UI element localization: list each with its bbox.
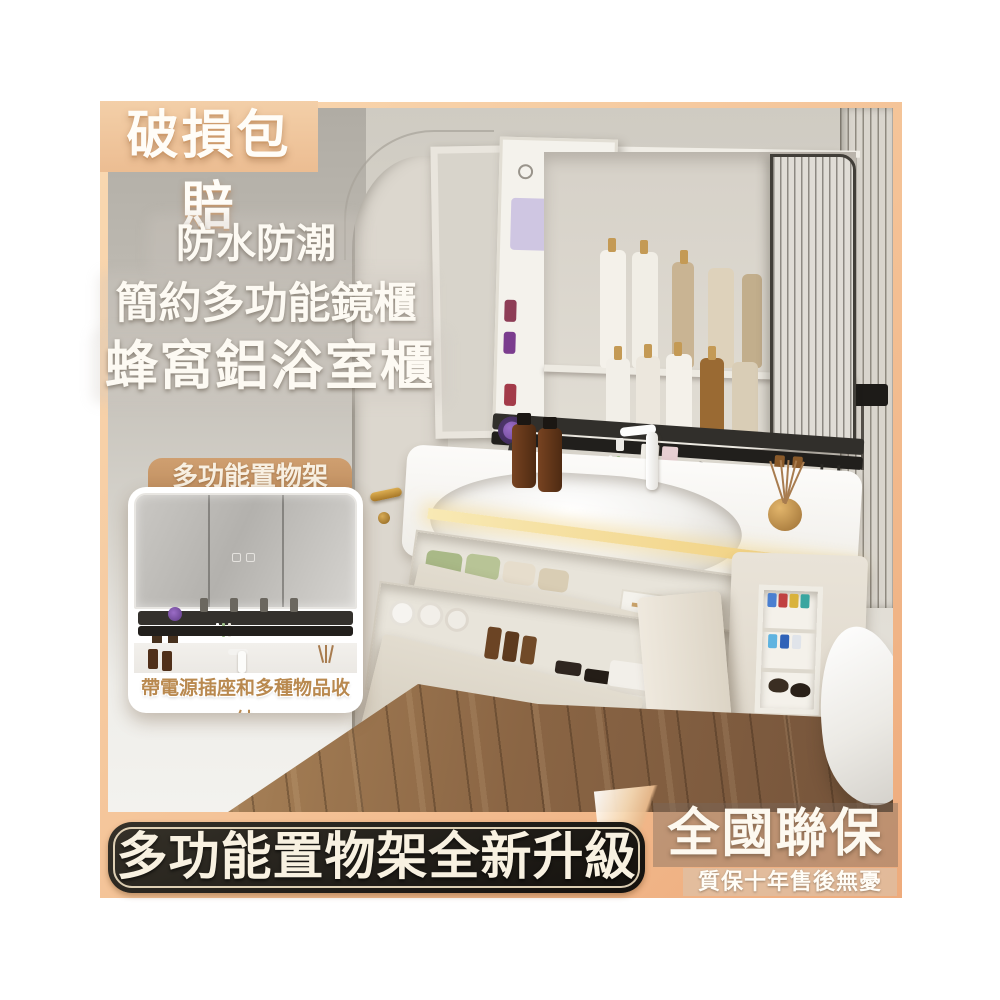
pump-cap xyxy=(608,238,616,252)
toiletry-box xyxy=(780,634,789,648)
pump-cap xyxy=(644,344,652,358)
niche-shelf xyxy=(762,628,816,634)
inset-rack-bar xyxy=(138,626,353,636)
toiletry-box xyxy=(789,594,798,608)
bottle-cap xyxy=(517,413,531,425)
mirror-touch-icon xyxy=(232,553,241,562)
inset-card: 帶電源插座和多種物品收納 xyxy=(128,487,363,713)
side-cabinet-niche xyxy=(755,585,823,715)
reed-diffuser xyxy=(768,498,802,531)
pump-cap xyxy=(680,250,688,264)
travel-bottle xyxy=(502,631,520,663)
inset-reed xyxy=(318,645,324,663)
jar xyxy=(768,678,788,693)
travel-bottle xyxy=(484,626,502,660)
headline-aluminum-cabinet: 蜂窩鋁浴室櫃 xyxy=(100,338,440,396)
mirror-touch-icon xyxy=(246,553,255,562)
faucet xyxy=(646,432,658,490)
inset-soap-bottle xyxy=(148,649,158,669)
bottom-banner: 多功能置物架全新升級 xyxy=(108,822,645,893)
lotion-bottle xyxy=(742,274,762,368)
door-keyhole xyxy=(378,512,390,524)
hook-ring xyxy=(518,164,533,179)
inset-storage-rack xyxy=(138,611,353,625)
headline-mirror-cabinet: 簡約多功能鏡櫃 xyxy=(106,280,426,328)
toiletry-box xyxy=(778,593,787,607)
warranty-subtitle: 質保十年售後無憂 xyxy=(683,868,897,896)
headline-waterproof: 防水防潮 xyxy=(156,222,356,266)
pump-cap xyxy=(614,346,622,360)
toiletry-box xyxy=(768,634,777,648)
travel-bottle xyxy=(520,635,538,665)
towel-roll xyxy=(416,600,445,629)
inset-bottle xyxy=(290,598,298,612)
pump-cap xyxy=(674,342,682,356)
toiletry-box xyxy=(800,594,809,608)
inset-bottle xyxy=(200,598,208,612)
inset-faucet xyxy=(238,651,246,673)
bottle-cap xyxy=(543,417,557,429)
small-bottle xyxy=(504,384,517,406)
toiletry-box xyxy=(767,593,776,607)
national-warranty-badge: 全國聯保 xyxy=(653,803,898,867)
inset-caption: 帶電源插座和多種物品收納 xyxy=(134,673,357,707)
soap-bottle xyxy=(538,428,562,492)
toiletry-box xyxy=(792,635,801,649)
niche-shelf xyxy=(761,668,815,674)
small-bottle xyxy=(503,332,516,354)
jar xyxy=(790,683,810,698)
pump-cap xyxy=(640,240,648,254)
faucet-spout xyxy=(616,438,624,451)
shampoo-bottle xyxy=(600,250,626,368)
inset-bottle xyxy=(260,598,268,612)
product-poster: 破損包賠 防水防潮 簡約多功能鏡櫃 蜂窩鋁浴室櫃 多功能置物架 xyxy=(0,0,1000,1000)
towel-roll xyxy=(443,606,470,633)
damage-guarantee-badge: 破損包賠 xyxy=(100,101,318,172)
rolled-towel xyxy=(537,567,570,593)
small-bottle xyxy=(504,300,517,322)
inset-soap-bottle xyxy=(162,651,172,671)
inset-bottle xyxy=(230,598,238,612)
fluted-glass-door xyxy=(770,154,856,448)
cosmetic-compact xyxy=(554,660,582,676)
inset-mirror-cabinet xyxy=(134,493,357,609)
inset-reed xyxy=(325,645,327,663)
towel-roll xyxy=(388,598,417,627)
soap-bottle xyxy=(512,424,536,488)
pump-cap xyxy=(708,346,716,360)
inset-hairdryer xyxy=(168,607,182,621)
banner-text: 多功能置物架全新升級 xyxy=(108,822,645,893)
inset-reed xyxy=(328,645,333,663)
